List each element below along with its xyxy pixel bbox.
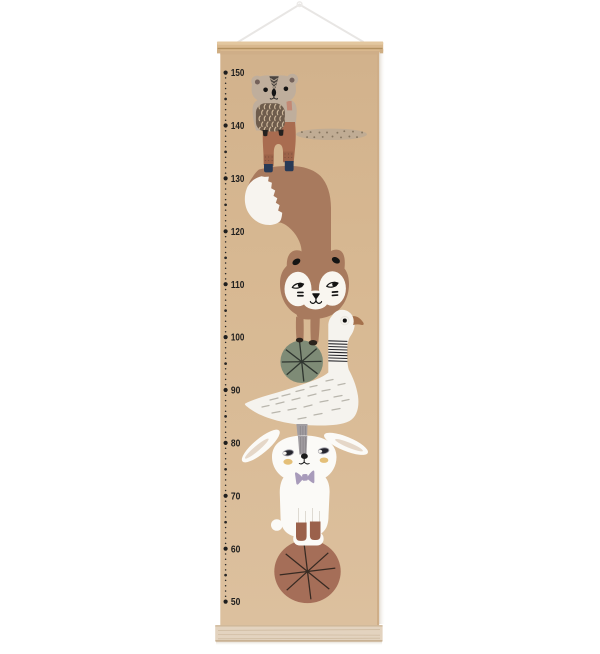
svg-text:100: 100 xyxy=(231,333,245,344)
svg-text:80: 80 xyxy=(231,439,241,450)
svg-text:90: 90 xyxy=(231,386,241,397)
svg-text:70: 70 xyxy=(231,491,241,502)
svg-text:140: 140 xyxy=(231,121,245,132)
svg-text:150: 150 xyxy=(231,68,245,79)
svg-text:130: 130 xyxy=(231,174,245,185)
svg-text:50: 50 xyxy=(231,597,241,608)
svg-text:60: 60 xyxy=(231,544,241,555)
svg-text:110: 110 xyxy=(231,280,245,291)
svg-text:120: 120 xyxy=(231,227,245,238)
